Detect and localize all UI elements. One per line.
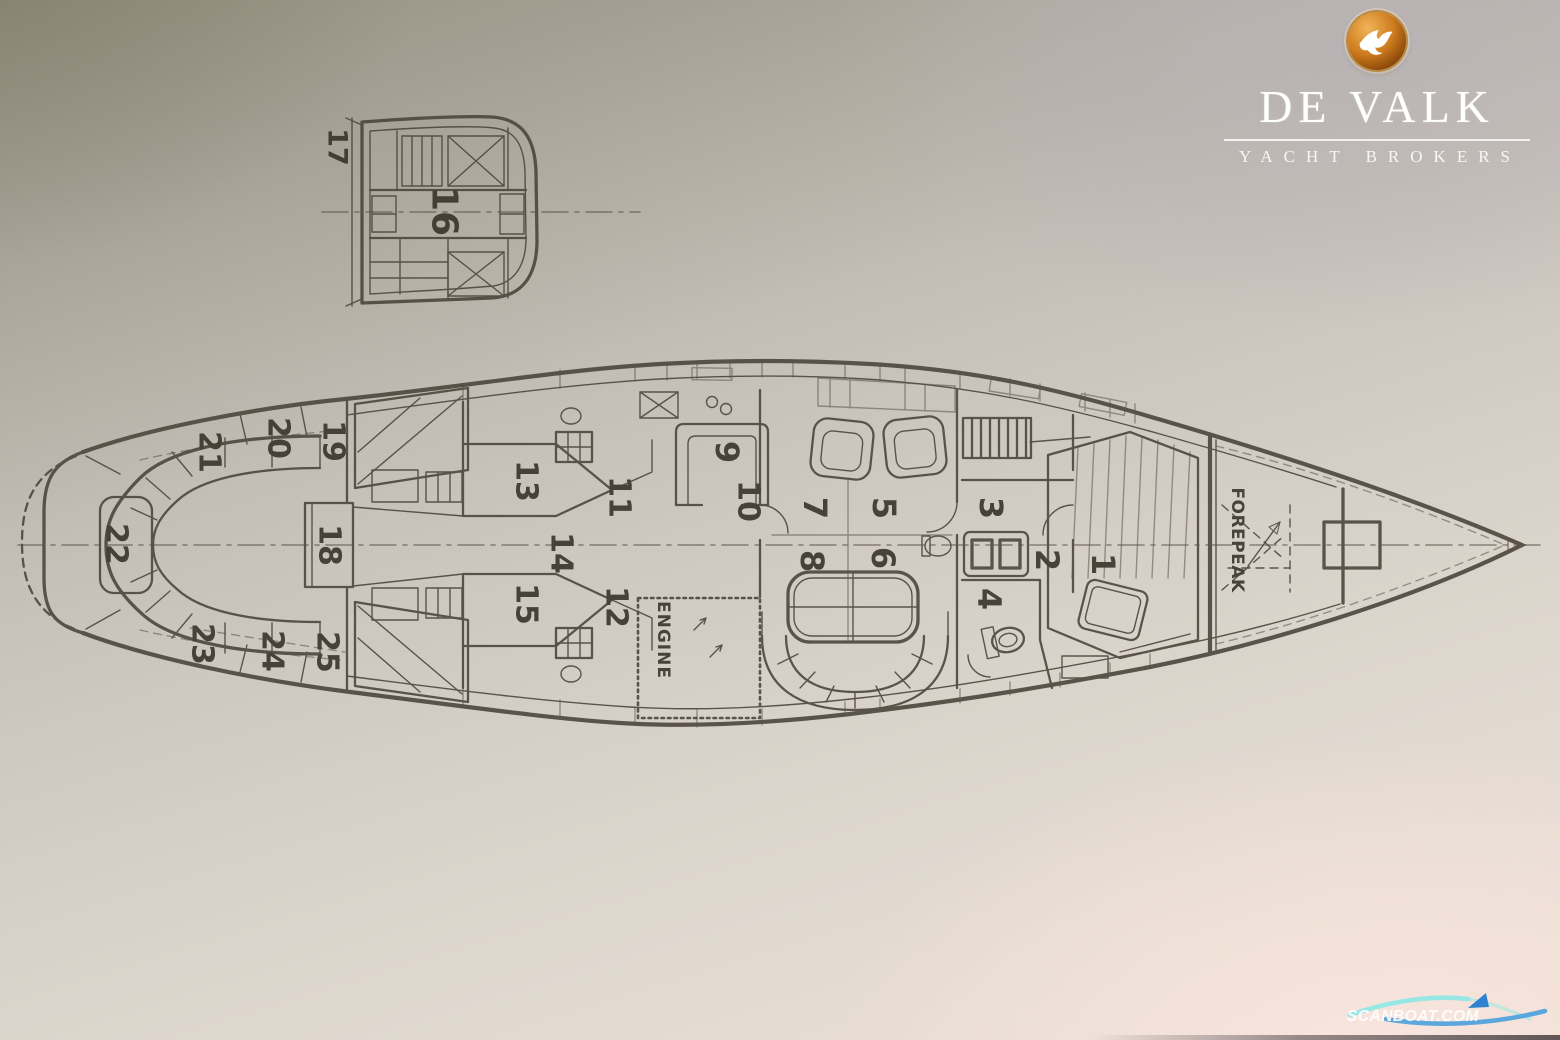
brand-divider	[1224, 139, 1530, 141]
compartment-label-10: 10	[731, 480, 766, 522]
compartment-label-11: 11	[602, 476, 637, 518]
compartment-label-22: 22	[99, 523, 134, 565]
compartment-label-25: 25	[310, 631, 345, 673]
photo-edge	[1090, 1035, 1560, 1040]
devalk-logo: DE VALK YACHT BROKERS	[1212, 12, 1542, 167]
forward-cabin	[962, 415, 1198, 688]
compartment-label-13: 13	[509, 460, 544, 502]
compartment-label-14: 14	[544, 532, 579, 574]
compartment-label-19: 19	[316, 420, 351, 462]
section-label-17: 17	[322, 128, 353, 166]
area-label-forepeak: FOREPEAK	[1227, 487, 1247, 592]
compartment-label-8: 8	[793, 550, 831, 572]
compartment-label-20: 20	[261, 417, 296, 459]
compartment-label-1: 1	[1084, 553, 1122, 575]
area-label-engine: ENGINE	[653, 601, 673, 679]
compartment-label-4: 4	[970, 588, 1008, 610]
brand-title: DE VALK	[1212, 84, 1542, 130]
falcon-badge-icon	[1348, 12, 1406, 70]
saloon	[760, 390, 957, 710]
compartment-label-3: 3	[972, 497, 1010, 519]
compartment-label-6: 6	[864, 547, 902, 569]
hull-outline	[22, 361, 1526, 725]
compartment-label-15: 15	[509, 583, 544, 625]
compartment-label-9: 9	[708, 441, 746, 463]
compartment-label-24: 24	[255, 630, 290, 672]
scanned-plan-photo: 1234567891011121314151819202122232425ENG…	[0, 0, 1560, 1040]
compartment-label-21: 21	[192, 431, 227, 473]
scanboat-watermark: SCANBOAT.COM	[1338, 988, 1560, 1040]
watermark-text: SCANBOAT.COM	[1347, 1008, 1480, 1025]
compartment-label-7: 7	[796, 497, 834, 519]
compartment-label-12: 12	[599, 586, 634, 628]
brand-tagline: YACHT BROKERS	[1218, 147, 1542, 167]
compartment-labels: 1234567891011121314151819202122232425ENG…	[99, 128, 1248, 679]
compartment-label-5: 5	[865, 497, 903, 519]
compartment-label-23: 23	[185, 623, 220, 665]
compartment-label-2: 2	[1028, 549, 1066, 571]
centerline	[18, 212, 1545, 545]
section-label-16: 16	[424, 186, 465, 236]
compartment-label-18: 18	[312, 524, 347, 566]
